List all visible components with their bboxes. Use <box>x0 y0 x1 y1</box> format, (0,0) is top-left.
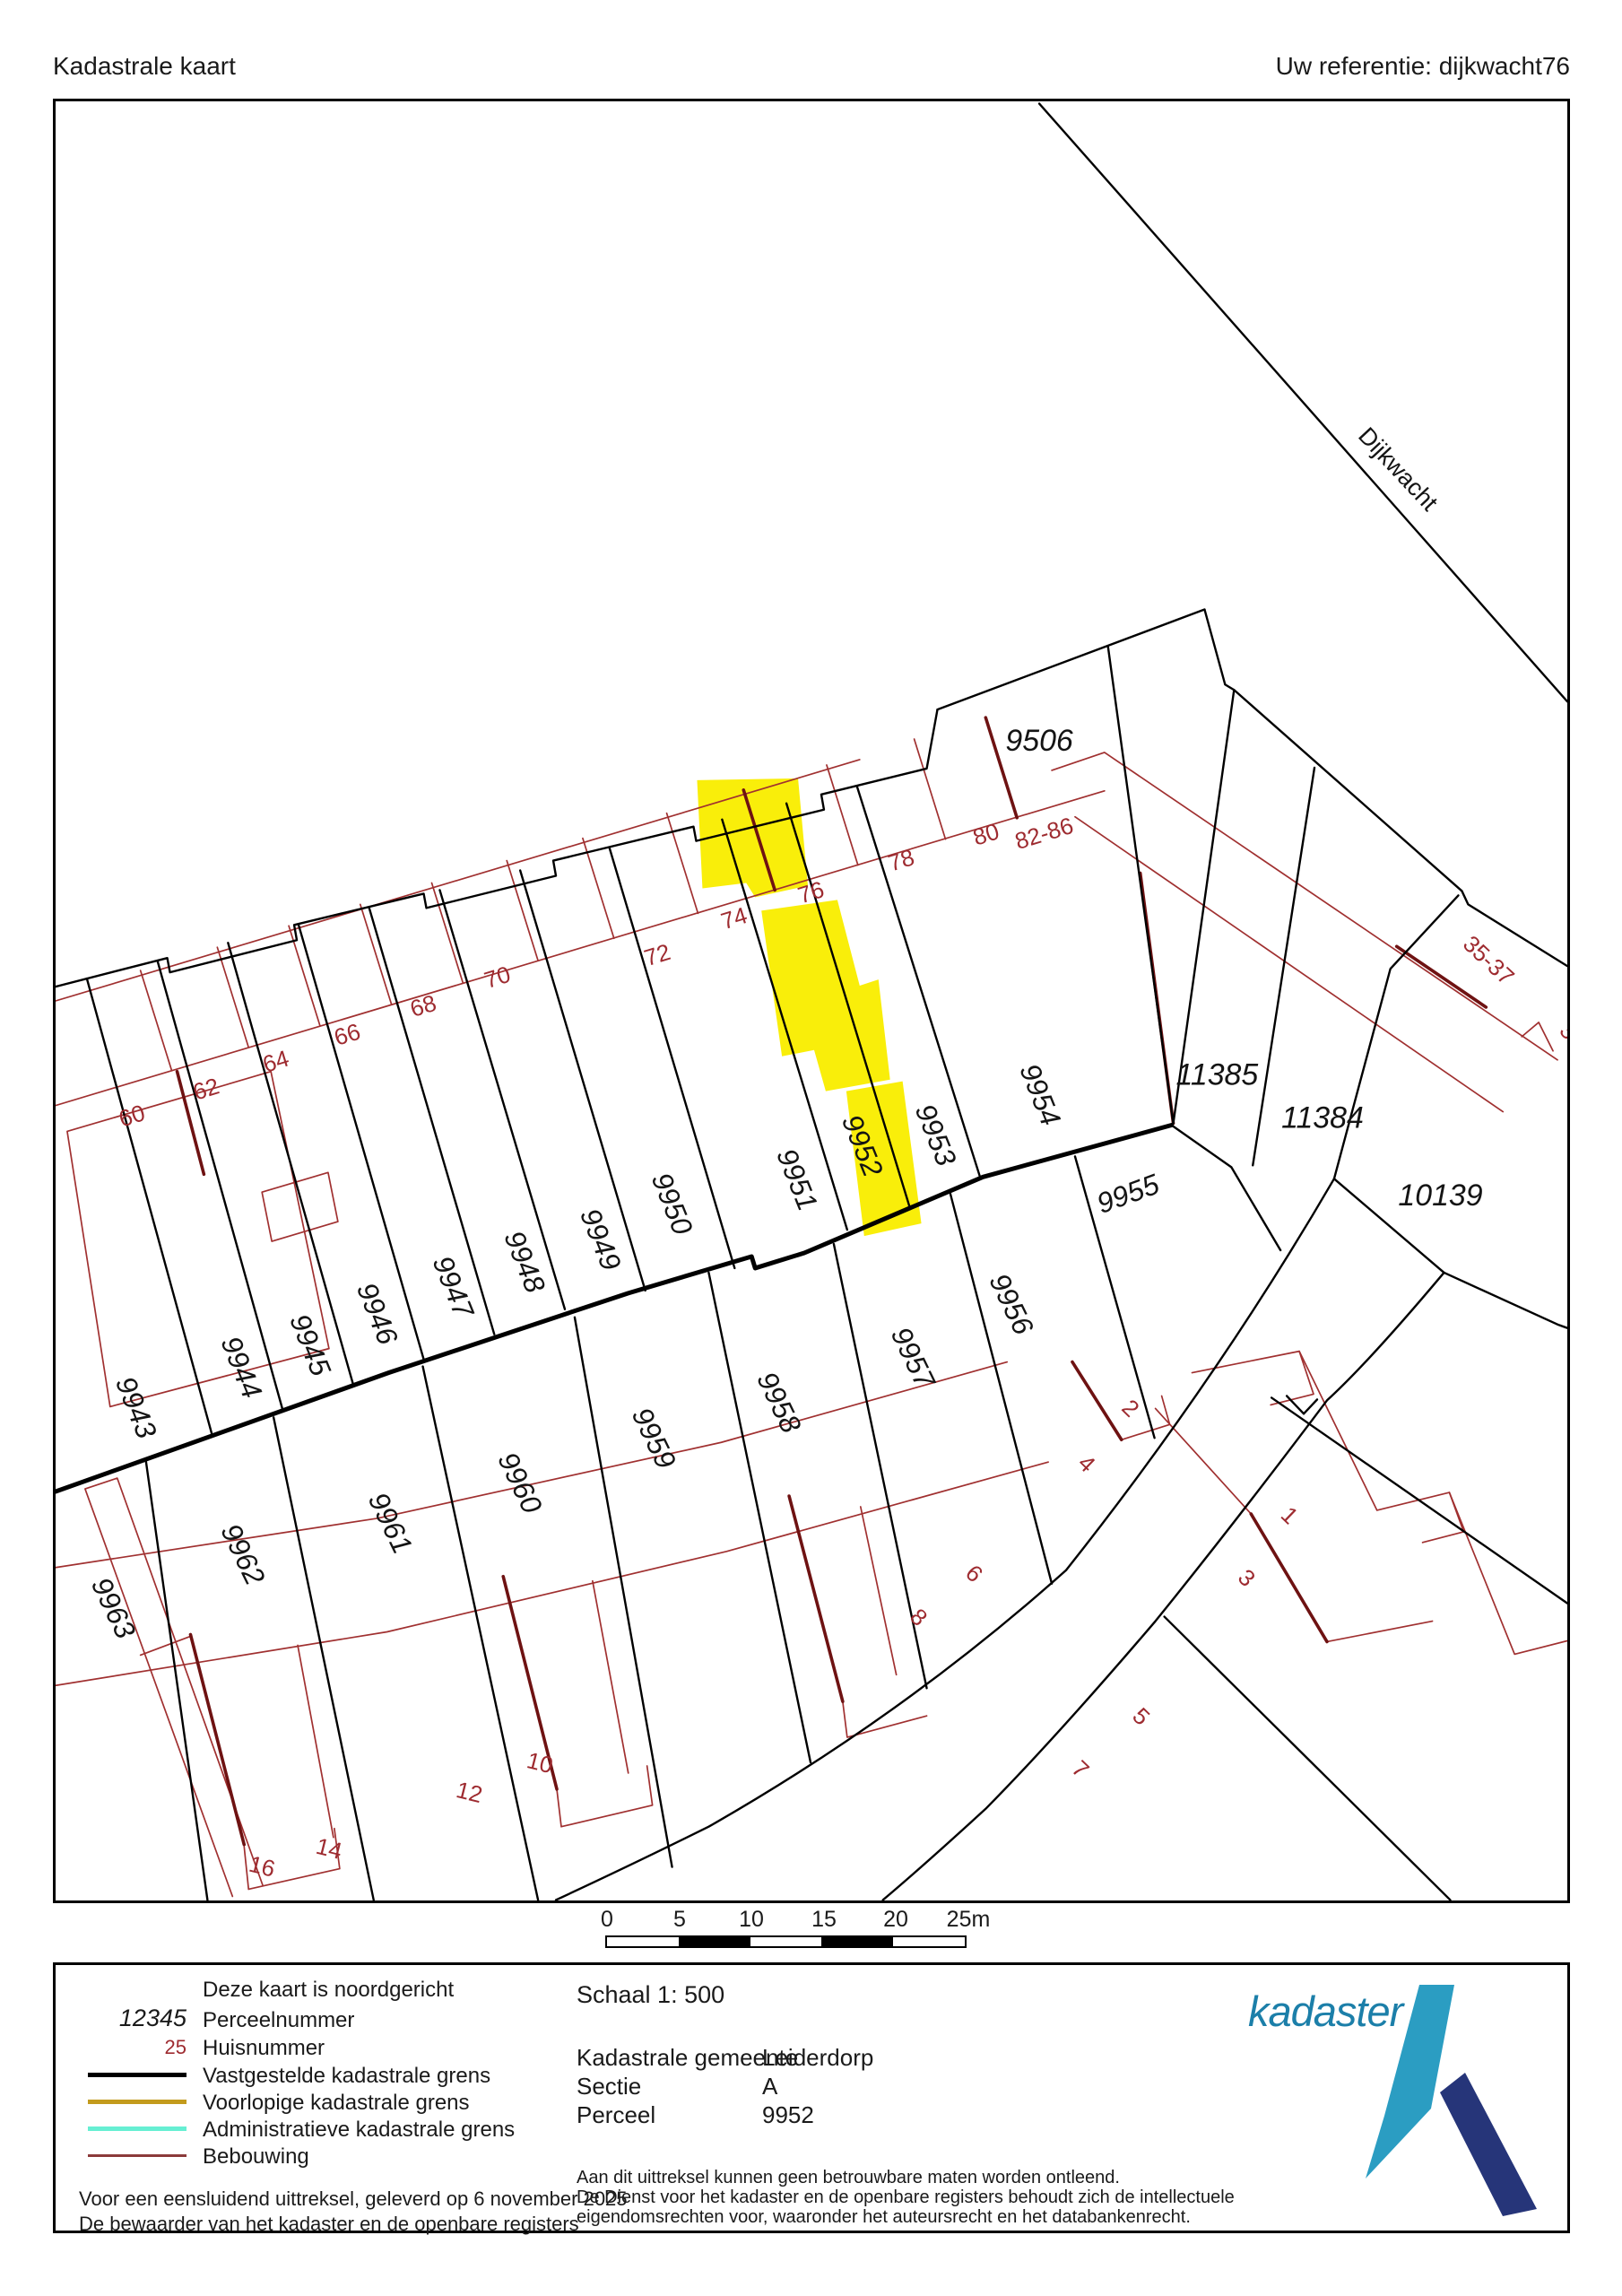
page-title: Kadastrale kaart <box>53 52 236 81</box>
kadaster-logo: kadaster <box>1230 1974 1573 2227</box>
scale-tick: 15 <box>811 1907 837 1933</box>
legend-label-housenumber: Huisnummer <box>203 2036 325 2061</box>
section-label: Sectie <box>577 2073 641 2100</box>
legend-line-fixed-boundary <box>88 2073 186 2077</box>
cadastral-extract-page: { "header": { "title": "Kadastrale kaart… <box>0 0 1622 2296</box>
scale-tick: 20 <box>883 1907 908 1933</box>
reference-text: Uw referentie: dijkwacht76 <box>1276 52 1570 81</box>
house-number-82-86: 82-86 <box>1012 813 1077 855</box>
scale-bar-segment <box>679 1937 750 1946</box>
house-number-10: 10 <box>525 1748 556 1779</box>
legend-sample-housenumber: 25 <box>79 2036 186 2059</box>
parcel-number-11384: 11384 <box>1281 1100 1364 1135</box>
parcel-number-9954: 9954 <box>1013 1059 1067 1130</box>
house-number-78: 78 <box>885 845 917 876</box>
legend-label-administrative-boundary: Administratieve kadastrale grens <box>203 2118 515 2143</box>
house-number-70: 70 <box>481 962 514 994</box>
scale-bar-segment <box>821 1937 893 1946</box>
parcel-number-11385: 11385 <box>1176 1058 1259 1092</box>
street-name-labels: Dijkwacht <box>1353 422 1444 517</box>
house-number-3: 3 <box>1233 1565 1260 1592</box>
municipality-value: Leiderdorp <box>762 2044 873 2072</box>
house-number-80: 80 <box>970 819 1002 850</box>
legend-line-building <box>88 2154 186 2157</box>
house-number-72: 72 <box>641 940 673 971</box>
house-number-14: 14 <box>313 1834 344 1865</box>
legend-line-administrative-boundary <box>88 2126 186 2131</box>
parcel-number-10139: 10139 <box>1398 1178 1482 1213</box>
parcel-number-9962: 9962 <box>214 1518 272 1590</box>
parcel-label: Perceel <box>577 2101 655 2129</box>
house-number-3: 3 <box>1555 1018 1567 1045</box>
parcel-number-9943: 9943 <box>109 1372 163 1443</box>
street-name-Dijkwacht: Dijkwacht <box>1353 422 1444 517</box>
legend-label-provisional-boundary: Voorlopige kadastrale grens <box>203 2091 470 2116</box>
house-number-1: 1 <box>1276 1502 1303 1529</box>
house-number-6: 6 <box>960 1561 987 1587</box>
legend-line-provisional-boundary <box>88 2100 186 2104</box>
section-value: A <box>762 2073 777 2100</box>
north-note: Deze kaart is noordgericht <box>203 1978 454 2003</box>
scale-bar-segment <box>607 1937 679 1946</box>
house-number-35-37: 35-37 <box>1458 931 1519 990</box>
legend-sample-parcelnumber: 12345 <box>79 2005 186 2032</box>
house-number-68: 68 <box>407 991 439 1022</box>
footer-panel: Deze kaart is noordgericht 12345 Perceel… <box>53 1962 1570 2233</box>
scale-label: Schaal 1: 500 <box>577 1981 724 2009</box>
logo-dark-stroke <box>1440 2073 1537 2216</box>
cadastral-map-svg: Dijkwacht 950611385113841013999549953995… <box>56 101 1567 1900</box>
legend-label-fixed-boundary: Vastgestelde kadastrale grens <box>203 2064 490 2089</box>
parcel-number-9959: 9959 <box>626 1403 683 1474</box>
scale-tick: 10 <box>739 1907 764 1933</box>
parcel-number-9949: 9949 <box>574 1204 628 1274</box>
parcel-number-9946: 9946 <box>351 1278 404 1349</box>
house-number-66: 66 <box>332 1020 364 1051</box>
parcel-number-9961: 9961 <box>362 1487 419 1559</box>
disclaimer-line3: eigendomsrechten voor, waaronder het aut… <box>577 2207 1191 2227</box>
parcel-number-9956: 9956 <box>983 1268 1040 1340</box>
parcel-number-9951: 9951 <box>770 1144 824 1215</box>
parcel-number-9963: 9963 <box>85 1572 143 1644</box>
scale-tick: 5 <box>673 1907 686 1933</box>
house-number-2: 2 <box>1116 1396 1143 1422</box>
kadaster-wordmark: kadaster <box>1248 1987 1406 2035</box>
footnote-line2: De bewaarder van het kadaster en de open… <box>79 2213 579 2236</box>
house-number-5: 5 <box>1127 1703 1154 1730</box>
scale-bar-segment <box>893 1937 965 1946</box>
scale-bar: 0 5 10 15 20 25m <box>605 1935 967 1948</box>
parcel-number-9957: 9957 <box>885 1322 942 1395</box>
map-frame: Dijkwacht 950611385113841013999549953995… <box>53 99 1570 1903</box>
disclaimer-line2: De Dienst voor het kadaster en de openba… <box>577 2187 1235 2207</box>
house-number-74: 74 <box>718 903 750 935</box>
parcel-number-9950: 9950 <box>646 1168 699 1239</box>
parcel-value: 9952 <box>762 2101 814 2129</box>
legend-label-building: Bebouwing <box>203 2144 309 2170</box>
house-number-7: 7 <box>1067 1756 1094 1783</box>
house-number-4: 4 <box>1073 1450 1100 1477</box>
house-number-16: 16 <box>247 1852 278 1883</box>
scale-bar-segment <box>750 1937 822 1946</box>
parcel-number-9955: 9955 <box>1092 1168 1163 1220</box>
scale-tick: 25m <box>947 1907 991 1933</box>
disclaimer-line1: Aan dit uittreksel kunnen geen betrouwba… <box>577 2168 1120 2187</box>
scale-tick: 0 <box>601 1907 613 1933</box>
footnote-line1: Voor een eensluidend uittreksel, gelever… <box>79 2187 628 2211</box>
house-number-62: 62 <box>190 1074 222 1105</box>
house-number-12: 12 <box>454 1778 485 1808</box>
legend-label-parcelnumber: Perceelnummer <box>203 2008 354 2033</box>
parcel-number-9506: 9506 <box>1005 724 1072 758</box>
parcel-number-9945: 9945 <box>283 1309 337 1380</box>
parcel-number-9958: 9958 <box>750 1367 808 1439</box>
parcel-number-9953: 9953 <box>909 1100 963 1170</box>
